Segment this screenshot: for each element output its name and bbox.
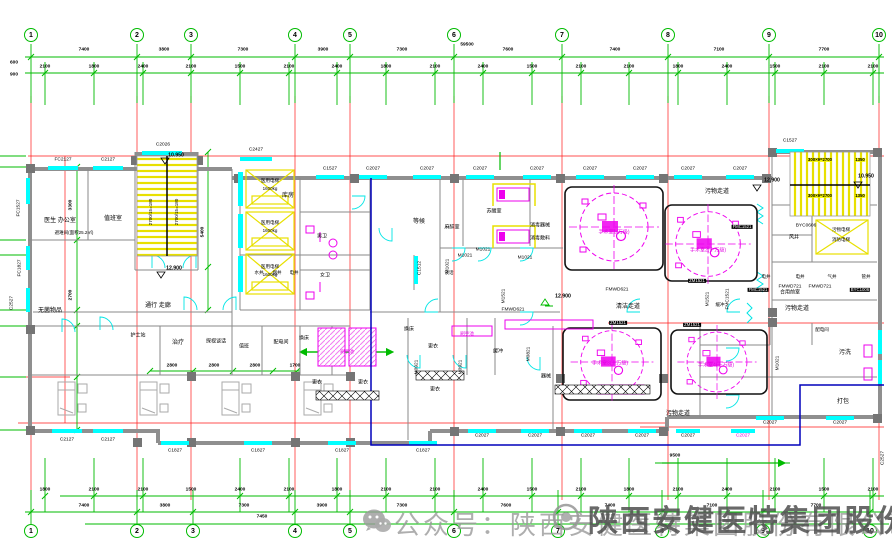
window-label: C2027 bbox=[763, 422, 777, 427]
dim: 1800 bbox=[673, 66, 684, 71]
grid-bubble-top-5: 5 bbox=[343, 28, 357, 42]
door-label: FMC1521 bbox=[748, 288, 769, 292]
room-label: 气井 bbox=[828, 275, 837, 280]
window-label: C2127 bbox=[60, 439, 74, 444]
grid-bubble-top-7: 7 bbox=[555, 28, 569, 42]
dim: 2100 bbox=[770, 489, 781, 494]
dim-span: 7400 bbox=[79, 49, 90, 54]
ward-beds bbox=[58, 382, 333, 415]
window-label: C2027 bbox=[681, 168, 695, 173]
dim: 2400 bbox=[722, 66, 733, 71]
window-label: FC1827 bbox=[19, 259, 24, 276]
dim: 1500 bbox=[770, 66, 781, 71]
room-label: 手术室2(十万级) bbox=[690, 249, 726, 254]
dim: 3300 bbox=[70, 200, 75, 211]
room-label: 医用电梯 bbox=[261, 221, 279, 226]
room-label: 电井 bbox=[290, 271, 299, 276]
level-label: 12.900 bbox=[555, 294, 571, 299]
dim: 2100 bbox=[819, 66, 830, 71]
grid-bubble-top-2: 2 bbox=[130, 28, 144, 42]
stair-dim-note: 1350 bbox=[855, 194, 865, 198]
dim-span: 7600 bbox=[503, 49, 514, 54]
dim: 2100 bbox=[430, 66, 441, 71]
window-label: C2027 bbox=[833, 422, 847, 427]
window-label: C2027 bbox=[681, 435, 695, 440]
dim: 2100 bbox=[284, 66, 295, 71]
dim: 1500 bbox=[235, 66, 246, 71]
window-label: C2527 bbox=[882, 451, 887, 465]
window-label: C2027 bbox=[530, 168, 544, 173]
stair-dim-note: 300×9=2700 bbox=[808, 158, 832, 162]
room-label: 手术室3(十万级) bbox=[592, 362, 628, 367]
dim: 2100 bbox=[89, 489, 100, 494]
window-label: C1827 bbox=[251, 450, 265, 455]
room-label: 医用电梯 bbox=[261, 179, 279, 184]
grid-bubble-top-1: 1 bbox=[24, 28, 38, 42]
grid-bubble-bottom-5: 5 bbox=[343, 524, 357, 538]
dim: 2100 bbox=[40, 66, 51, 71]
dim: 1500 bbox=[527, 66, 538, 71]
window-label: FC1527 bbox=[18, 199, 23, 216]
stair-top-left bbox=[137, 156, 197, 256]
dim: 1800 bbox=[624, 489, 635, 494]
door-label: ZM1521 bbox=[683, 323, 701, 327]
door-label: ZM1521 bbox=[609, 321, 627, 325]
dim-span: 3800 bbox=[160, 505, 171, 510]
dim: 1800 bbox=[40, 489, 51, 494]
dim: 1800 bbox=[381, 66, 392, 71]
dim: 2400 bbox=[235, 489, 246, 494]
door-label: FMWD621 bbox=[606, 289, 629, 294]
room-label: 男卫 bbox=[317, 235, 327, 240]
dim: 2400 bbox=[478, 66, 489, 71]
level-label: 10.950 bbox=[168, 153, 184, 158]
dim: 2100 bbox=[284, 489, 295, 494]
room-label: 避难间(面积25.2㎡) bbox=[55, 231, 94, 236]
door-label: M1521 bbox=[707, 292, 712, 307]
grid-bubble-bottom-3: 3 bbox=[186, 524, 200, 538]
window-label: C2027 bbox=[635, 435, 649, 440]
room-label: 风井 bbox=[789, 236, 799, 241]
door-label: M0921 bbox=[416, 360, 421, 375]
dim: 2700 bbox=[70, 290, 75, 301]
room-label: 换床 bbox=[404, 328, 414, 333]
window-label: C2127 bbox=[101, 159, 115, 164]
dim: 1800 bbox=[89, 66, 100, 71]
operating-room-boxes bbox=[563, 187, 767, 400]
room-label: 刷手池 bbox=[340, 350, 354, 355]
dim-span: 7300 bbox=[238, 49, 249, 54]
window-label: FC2127 bbox=[54, 159, 71, 164]
dim: 1700 bbox=[290, 365, 301, 370]
room-label: 刷手池 bbox=[460, 332, 474, 337]
dim: 2100 bbox=[430, 489, 441, 494]
dim: 2800 bbox=[209, 365, 220, 370]
window-label: C1827 bbox=[416, 450, 430, 455]
dim-span: 3900 bbox=[318, 49, 329, 54]
room-label: 护士站 bbox=[130, 334, 145, 339]
plan-linework bbox=[0, 0, 892, 558]
grid-bubble-top-9: 9 bbox=[762, 28, 776, 42]
dim: 2100 bbox=[868, 489, 879, 494]
window-label: C2027 bbox=[633, 168, 647, 173]
door-label: M0821 bbox=[528, 347, 533, 362]
stair-dim-note: 1350 bbox=[855, 158, 865, 162]
dim-span: 7300 bbox=[397, 49, 408, 54]
room-label: 医生 办公室 bbox=[44, 218, 76, 224]
door-label: BYC0606 bbox=[796, 225, 817, 230]
dim-span: 7100 bbox=[714, 49, 725, 54]
window-label: C2127 bbox=[101, 439, 115, 444]
door-label: FMC1521 bbox=[727, 288, 732, 309]
shaft-strips bbox=[238, 172, 243, 292]
dim-span: 3800 bbox=[159, 49, 170, 54]
window-label: C2027 bbox=[528, 435, 542, 440]
room-label: 电井 bbox=[796, 275, 805, 280]
room-label: 值班室 bbox=[104, 216, 122, 222]
dim: 2800 bbox=[167, 365, 178, 370]
door-label: FMWD621 bbox=[502, 309, 525, 314]
door-label: M1021 bbox=[476, 249, 491, 254]
room-label: 手术室4(十万级) bbox=[698, 364, 734, 369]
door-label: BYC1006 bbox=[850, 288, 870, 292]
room-label: 配电间 bbox=[815, 328, 829, 333]
grid-bubble-top-8: 8 bbox=[661, 28, 675, 42]
watermark-company-text: 陕西安健医特集团股份有限公司 bbox=[588, 496, 892, 540]
room-label: 配电间 bbox=[273, 341, 288, 346]
level-label: 12.900 bbox=[764, 178, 780, 183]
window-label: C2427 bbox=[249, 149, 263, 154]
room-label: 打包 bbox=[837, 399, 849, 405]
dim: 2100 bbox=[381, 489, 392, 494]
window-label: C1527 bbox=[323, 168, 337, 173]
room-label: 手术室1(万级) bbox=[598, 231, 629, 236]
dim: 1800 bbox=[332, 489, 343, 494]
room-label: 消毒敷料 bbox=[530, 237, 550, 242]
room-label: 换床 bbox=[299, 337, 309, 342]
window-label: C2027 bbox=[473, 168, 487, 173]
floor-plan-canvas: 1 2 3 4 5 6 7 8 9 10 1 2 3 4 5 6 7 8 9 1… bbox=[0, 0, 892, 558]
dim: 1500 bbox=[186, 489, 197, 494]
room-label: 污物走道 bbox=[705, 189, 729, 195]
room-label: 污洗 bbox=[839, 350, 851, 356]
door-label: M1521 bbox=[503, 289, 508, 304]
stair-riser-note: 2700/15=180 bbox=[175, 199, 180, 225]
room-label: 库房 bbox=[282, 193, 294, 199]
room-label: 无菌物品 bbox=[38, 308, 62, 314]
dim: 7450 bbox=[257, 516, 268, 521]
room-label: 清洁走道 bbox=[616, 304, 640, 310]
door-label: FMWD721 bbox=[809, 286, 832, 291]
room-label: 污物走道 bbox=[666, 411, 690, 417]
door-label: M1021 bbox=[458, 255, 473, 260]
dim: 2100 bbox=[186, 66, 197, 71]
door-label: ZM1521 bbox=[688, 279, 706, 283]
dim: 2100 bbox=[868, 66, 879, 71]
window-label: C1512 bbox=[419, 261, 424, 275]
room-label: 消防电梯 bbox=[832, 238, 850, 243]
room-label: 更衣 bbox=[428, 345, 438, 350]
stair-riser-note: 2700/15=180 bbox=[149, 199, 154, 225]
room-label: 1600kg bbox=[263, 229, 278, 234]
grid-bubble-bottom-2: 2 bbox=[130, 524, 144, 538]
window-label: C2027 bbox=[583, 168, 597, 173]
room-label: 苏醒室 bbox=[486, 210, 501, 215]
room-label: 器械 bbox=[541, 375, 551, 380]
wechat-icon bbox=[362, 508, 392, 536]
window-label: C2026 bbox=[156, 144, 170, 149]
dim: 2100 bbox=[673, 489, 684, 494]
dim: 5400 bbox=[202, 227, 207, 238]
window-label: C1527 bbox=[783, 140, 797, 145]
room-label: 消毒器械 bbox=[530, 224, 550, 229]
room-label: 谈话 bbox=[445, 271, 454, 276]
dim: 2100 bbox=[624, 66, 635, 71]
lockers bbox=[316, 371, 650, 400]
room-label: 合用前室 bbox=[780, 291, 800, 296]
room-label: 女卫 bbox=[320, 274, 330, 279]
dim-span: 7400 bbox=[610, 49, 621, 54]
dimension-ticks bbox=[28, 54, 882, 515]
dim: 900 bbox=[10, 74, 18, 79]
room-label: 1600kg bbox=[263, 273, 278, 278]
dim: 2100 bbox=[138, 489, 149, 494]
grid-bubble-bottom-4: 4 bbox=[288, 524, 302, 538]
room-label: 探视谈话 bbox=[206, 340, 226, 345]
dim: 2100 bbox=[576, 489, 587, 494]
window-label: C1827 bbox=[168, 450, 182, 455]
door-label: M1021 bbox=[518, 257, 533, 262]
room-label: 电井 bbox=[762, 275, 771, 280]
window-label: C2027 bbox=[475, 435, 489, 440]
dim: 1500 bbox=[527, 489, 538, 494]
dim-span: 7400 bbox=[79, 505, 90, 510]
grid-bubble-bottom-1: 1 bbox=[24, 524, 38, 538]
room-label: 1600kg bbox=[263, 187, 278, 192]
door-label: M1021 bbox=[777, 356, 782, 371]
dim: 2400 bbox=[478, 489, 489, 494]
room-label: 污物电梯 bbox=[832, 228, 850, 233]
dim: 1500 bbox=[819, 489, 830, 494]
window-label: C2527 bbox=[11, 296, 16, 310]
window-label: C2027 bbox=[736, 435, 750, 440]
level-label: 10.950 bbox=[858, 174, 874, 179]
dim-span: 3900 bbox=[317, 505, 328, 510]
room-label: 管井 bbox=[862, 275, 871, 280]
room-label: 污物走道 bbox=[785, 306, 809, 312]
grid-bubble-top-6: 6 bbox=[447, 28, 461, 42]
dim: 2400 bbox=[332, 66, 343, 71]
door-label: FMC1521 bbox=[732, 225, 753, 229]
dim: 600 bbox=[10, 62, 18, 67]
dim: 2100 bbox=[576, 66, 587, 71]
dim-span: 7700 bbox=[819, 49, 830, 54]
grid-bubble-top-4: 4 bbox=[288, 28, 302, 42]
door-label: M0921 bbox=[460, 360, 465, 375]
window-label: C2027 bbox=[420, 168, 434, 173]
window-label: C2027 bbox=[581, 435, 595, 440]
dim: 2800 bbox=[250, 365, 261, 370]
level-label: 12.900 bbox=[166, 266, 182, 271]
grid-bubble-top-3: 3 bbox=[184, 28, 198, 42]
dim-span: 7300 bbox=[239, 505, 250, 510]
room-label: 更衣 bbox=[358, 381, 368, 386]
room-label: 更衣 bbox=[312, 381, 322, 386]
dim: 2400 bbox=[722, 489, 733, 494]
room-label: 更衣 bbox=[430, 388, 440, 393]
room-label: 缓冲 bbox=[493, 350, 503, 355]
room-label: 医用电梯 bbox=[261, 265, 279, 270]
stair-dim-note: 300×9=2700 bbox=[808, 194, 832, 198]
window-label: C1827 bbox=[335, 450, 349, 455]
dim-total: 59500 bbox=[460, 44, 473, 49]
room-label: 缓冲 bbox=[716, 303, 725, 308]
window-label: C2027 bbox=[366, 168, 380, 173]
window-label: C2027 bbox=[733, 168, 747, 173]
dim: 2400 bbox=[138, 66, 149, 71]
room-label: 值班 bbox=[239, 345, 249, 350]
room-label: 通行 走廊 bbox=[145, 303, 171, 309]
room-label: 麻醉室 bbox=[444, 226, 459, 231]
room-label: 治疗 bbox=[172, 340, 184, 346]
dim: 9500 bbox=[670, 455, 681, 460]
grid-bubble-top-10: 10 bbox=[872, 28, 886, 42]
room-label: 等候 bbox=[413, 219, 425, 225]
